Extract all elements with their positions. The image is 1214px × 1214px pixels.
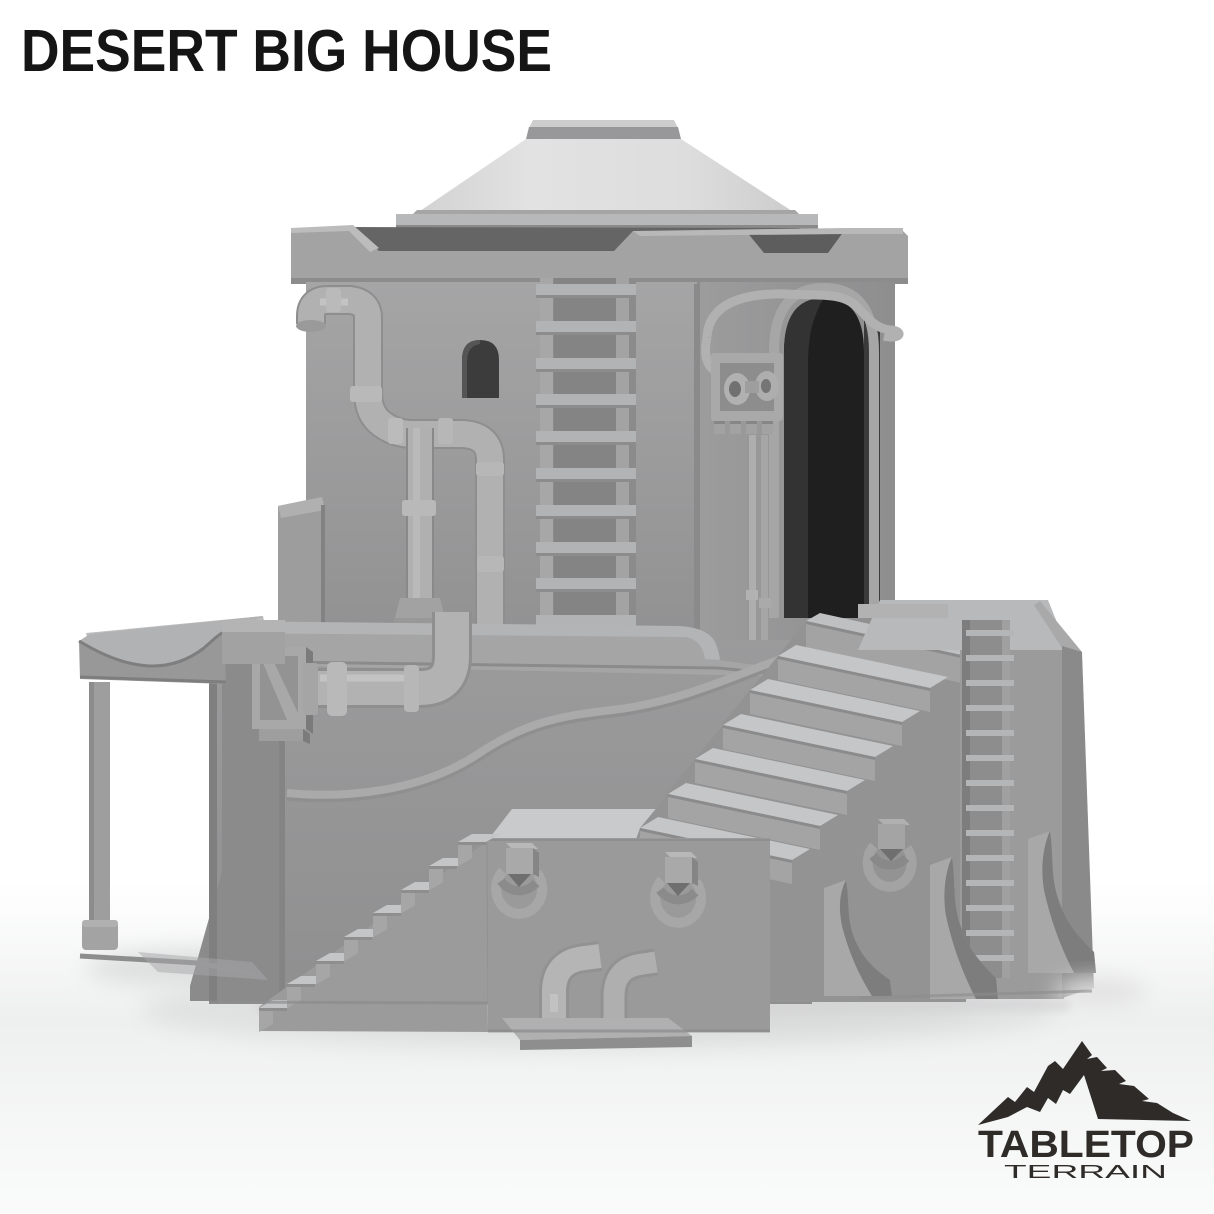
svg-text:TERRAIN: TERRAIN	[1004, 1162, 1167, 1182]
svg-text:TABLETOP: TABLETOP	[978, 1124, 1194, 1166]
svg-text:DESERT BIG HOUSE: DESERT BIG HOUSE	[21, 18, 552, 84]
